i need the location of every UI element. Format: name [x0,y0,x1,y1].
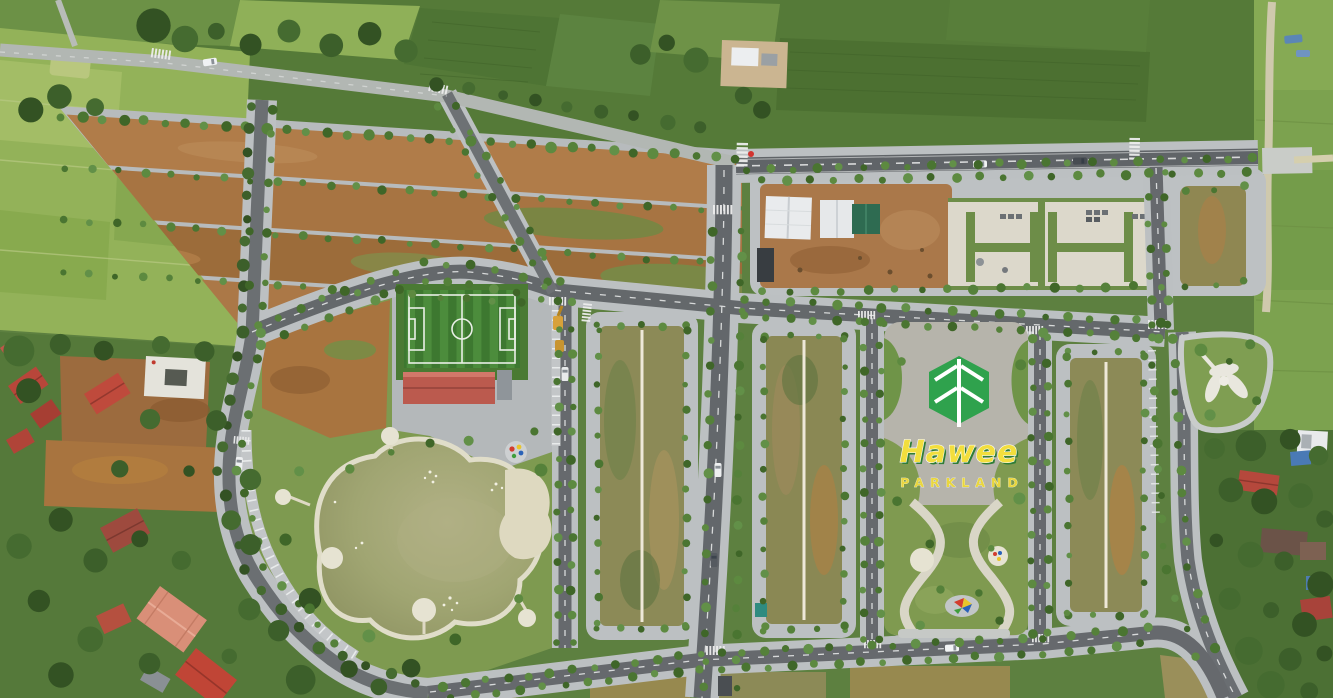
tree [879,659,886,666]
tree [275,314,282,321]
tree [736,441,745,450]
tree [1039,635,1046,642]
tree [491,266,499,274]
tree [594,406,602,414]
tree [1219,588,1241,610]
tree [704,468,714,478]
tree [670,204,677,211]
tree [617,253,625,261]
tree [860,439,868,447]
tree [217,441,228,452]
tree [515,685,525,695]
tree [467,129,473,135]
tree [1274,552,1293,571]
tree [1044,382,1052,390]
tree [485,244,493,252]
tree [1046,533,1052,539]
tree [718,648,726,656]
tree [544,668,554,678]
tree [278,20,301,43]
tree [683,48,708,73]
tree [352,182,360,190]
tree [588,144,596,152]
tree [631,659,639,667]
tree [466,136,477,147]
tree [996,283,1005,292]
tree [737,252,747,262]
tree [111,460,128,477]
tree [1182,516,1189,523]
tree [18,97,43,122]
tree [841,440,849,448]
tree [708,227,718,237]
tree [1143,610,1149,616]
tree [1236,431,1267,462]
tree [1017,159,1027,169]
lot-block-b [752,322,856,638]
tree [1279,648,1302,671]
tree [370,295,380,305]
tree [1160,193,1168,201]
tree [263,207,270,214]
tree [566,455,576,465]
tree [1141,579,1148,586]
tree [267,130,275,138]
tree [1133,156,1143,166]
tree [1042,359,1051,368]
tree [707,256,715,264]
tree [140,409,160,429]
tree [226,372,238,384]
tree [875,587,882,594]
tree [1163,270,1170,277]
tree [683,593,691,601]
tree [465,280,473,288]
tree [594,539,602,547]
tree [736,279,743,286]
tree [340,286,350,296]
tree [970,310,978,318]
tree [353,235,362,244]
tree [1171,359,1180,368]
tree [647,148,658,159]
tree [995,158,1003,166]
tree [247,382,254,389]
tree [1045,482,1054,491]
concrete-pad [144,356,206,399]
tree [876,390,884,398]
tree [240,469,261,490]
tree [787,289,794,296]
tree [1041,158,1050,167]
tree [464,436,474,446]
tree [1065,580,1072,587]
tree [1027,557,1034,564]
tree [514,204,520,210]
tree [683,326,691,334]
tree [660,624,668,632]
tree [1171,389,1178,396]
tree [673,667,683,677]
tree [1044,629,1052,637]
tree [142,169,151,178]
tree [6,534,31,559]
tree [568,665,577,674]
tree [875,463,882,470]
tree [220,174,228,182]
tree [879,177,886,184]
tree [594,515,600,521]
tree [698,207,704,213]
tree [1030,508,1036,514]
tree [172,551,191,570]
tree [492,689,500,697]
tree [596,328,602,334]
tree [167,171,174,178]
tree [486,137,494,145]
tree [139,115,149,125]
tree [683,514,692,523]
tree [683,460,691,468]
tree [616,202,623,209]
tree [840,622,848,630]
tree [325,235,332,242]
tree [162,120,169,127]
tree [1110,159,1118,167]
tree [1161,221,1167,227]
tree [1219,478,1244,503]
tree [556,326,562,332]
tree [1110,315,1119,324]
tree [856,657,865,666]
tree [194,341,214,361]
tree [875,636,883,644]
tree [1145,193,1153,201]
tree [711,152,721,162]
tree [753,101,771,119]
tree [832,300,842,310]
tree [643,202,652,211]
tree [245,227,253,235]
tree [975,589,982,596]
tree [429,77,443,91]
tree [94,341,114,361]
tree [561,101,572,112]
tree [816,334,822,340]
tree [28,590,50,612]
tree [462,82,475,95]
tree [1252,396,1261,405]
tree [974,160,983,169]
tree [787,314,796,323]
tree [193,174,199,180]
tree [379,289,388,298]
tree [86,219,93,226]
tree [361,661,370,670]
tree [364,129,375,140]
tree [630,44,651,65]
tree [419,258,428,267]
tree [538,195,545,202]
tree [765,665,772,672]
tree [782,645,789,652]
tree [299,179,306,186]
tree [445,138,452,145]
tree [262,280,268,286]
tree [253,354,262,363]
tree [431,190,438,197]
tree [1115,612,1124,621]
tree [1064,522,1071,529]
tree [919,287,926,294]
tree [1064,468,1071,475]
tree [1042,314,1049,321]
tree [1043,459,1050,466]
tree [553,509,560,516]
tree [406,186,414,194]
tree [16,378,41,403]
tree [443,262,450,269]
container [757,248,774,282]
tree [136,8,170,42]
tree [595,486,602,493]
tree [1101,283,1111,293]
tree [1087,329,1094,336]
tree [294,466,304,476]
tree [860,561,868,569]
tree [674,651,683,660]
tree [1158,284,1165,291]
tree [1251,488,1277,514]
tree [743,167,750,174]
tree [328,285,337,294]
tree [1245,339,1255,349]
tree [698,651,705,658]
tree [232,351,242,361]
blue-tarp [1296,50,1310,57]
tree [1154,465,1162,473]
tree [268,156,275,163]
tree [343,131,352,140]
tree [696,258,703,265]
tree [787,625,795,633]
tree [1090,612,1096,618]
tree [1028,531,1036,539]
tree [1096,169,1104,177]
park-playground [945,595,979,617]
tree [152,336,170,354]
tree [1288,483,1313,508]
tree [530,427,538,435]
tree [377,185,386,194]
tree [119,115,130,126]
tree [1181,157,1188,164]
tree [617,322,625,330]
tree [319,33,343,57]
tree [876,417,882,423]
tree [949,160,956,167]
tree [78,111,89,122]
tree [568,427,576,435]
parkland-text: PARKLAND [900,475,1023,490]
tree [1194,168,1203,177]
tree [660,115,675,130]
tree [370,679,387,696]
tree [568,298,576,306]
tree [806,175,814,183]
tree [1028,629,1038,639]
tree [735,386,744,395]
park-pad [910,548,934,572]
tree [876,317,885,326]
tree [238,440,246,448]
tree [411,679,420,688]
tree [732,495,742,505]
tree [1118,626,1128,636]
tree [904,164,910,170]
tree [948,306,958,316]
tree [219,277,227,285]
tree [313,642,326,655]
tree [243,215,251,223]
tree [452,102,460,110]
tree [658,323,667,332]
tree [1064,647,1073,656]
tree [330,639,338,647]
tree [131,530,148,547]
tree [859,344,866,351]
tree [461,678,470,687]
aerial-photo-stage: Hawee Hawee PARKLAND [0,0,1333,698]
tree [238,598,260,620]
tree [556,456,562,462]
tree [1017,326,1025,334]
tree [1140,380,1147,387]
tree [258,302,266,310]
tree [735,414,742,421]
tree [1065,495,1073,503]
tree [1112,641,1122,651]
tree [1043,333,1051,341]
tree [1163,296,1173,306]
tree [1141,551,1150,560]
tree [1211,187,1217,193]
tree [1027,434,1034,441]
tree [881,161,890,170]
tree [803,644,813,654]
tree [299,231,308,240]
tree [1226,358,1233,365]
tree [438,682,448,692]
tree [1202,154,1211,163]
tree [568,349,577,358]
tree [735,87,752,104]
tree [762,314,769,321]
tree [758,176,765,183]
tree [1121,170,1131,180]
tree [1162,565,1172,575]
tree [1183,563,1191,571]
tree [553,639,560,646]
tree [556,277,565,286]
tree [200,122,208,130]
tree [1088,157,1097,166]
tree [971,323,978,330]
tree [1064,380,1072,388]
tree [670,256,679,265]
tree [1240,277,1248,285]
tree [949,654,958,663]
tree [734,470,742,478]
tree [257,586,266,595]
tree [617,624,625,632]
tree [238,304,247,313]
tree [450,128,456,134]
tree [568,561,576,569]
tree [554,558,562,566]
red-flag-marker [748,151,754,157]
tree [738,228,744,234]
tree [1087,646,1095,654]
tree [924,323,932,331]
tree [584,678,593,687]
tree [594,620,601,627]
tree [629,148,638,157]
tree [1240,181,1249,190]
tree [1162,169,1168,175]
tree [814,626,820,632]
tree [395,285,404,294]
tree [1045,605,1054,614]
tree [563,682,570,689]
tree [489,284,499,294]
tree [952,173,962,183]
tree [786,297,795,306]
tree [232,466,242,476]
tree [264,179,273,188]
tree [1162,244,1171,253]
tree [220,489,232,501]
tree [609,145,619,155]
tree [378,236,386,244]
tree [809,299,816,306]
foundation-slabs [948,198,1162,290]
tree [864,285,874,295]
tree [166,275,173,282]
tree [594,626,600,632]
tree [244,410,253,419]
tree [860,488,869,497]
tree [268,620,289,641]
tree [244,123,255,134]
tree [1224,156,1232,164]
tree [443,277,452,286]
tree [498,90,508,100]
tree [466,260,476,270]
tree [874,537,884,547]
tree [892,496,902,506]
tree [1182,537,1191,546]
tree [247,178,253,184]
tree [1242,167,1252,177]
tree [1148,362,1155,369]
tree [1151,415,1158,422]
tree [1158,492,1165,499]
tree [1044,505,1052,513]
tree [570,404,576,410]
tree [943,285,951,293]
tree [526,227,534,235]
